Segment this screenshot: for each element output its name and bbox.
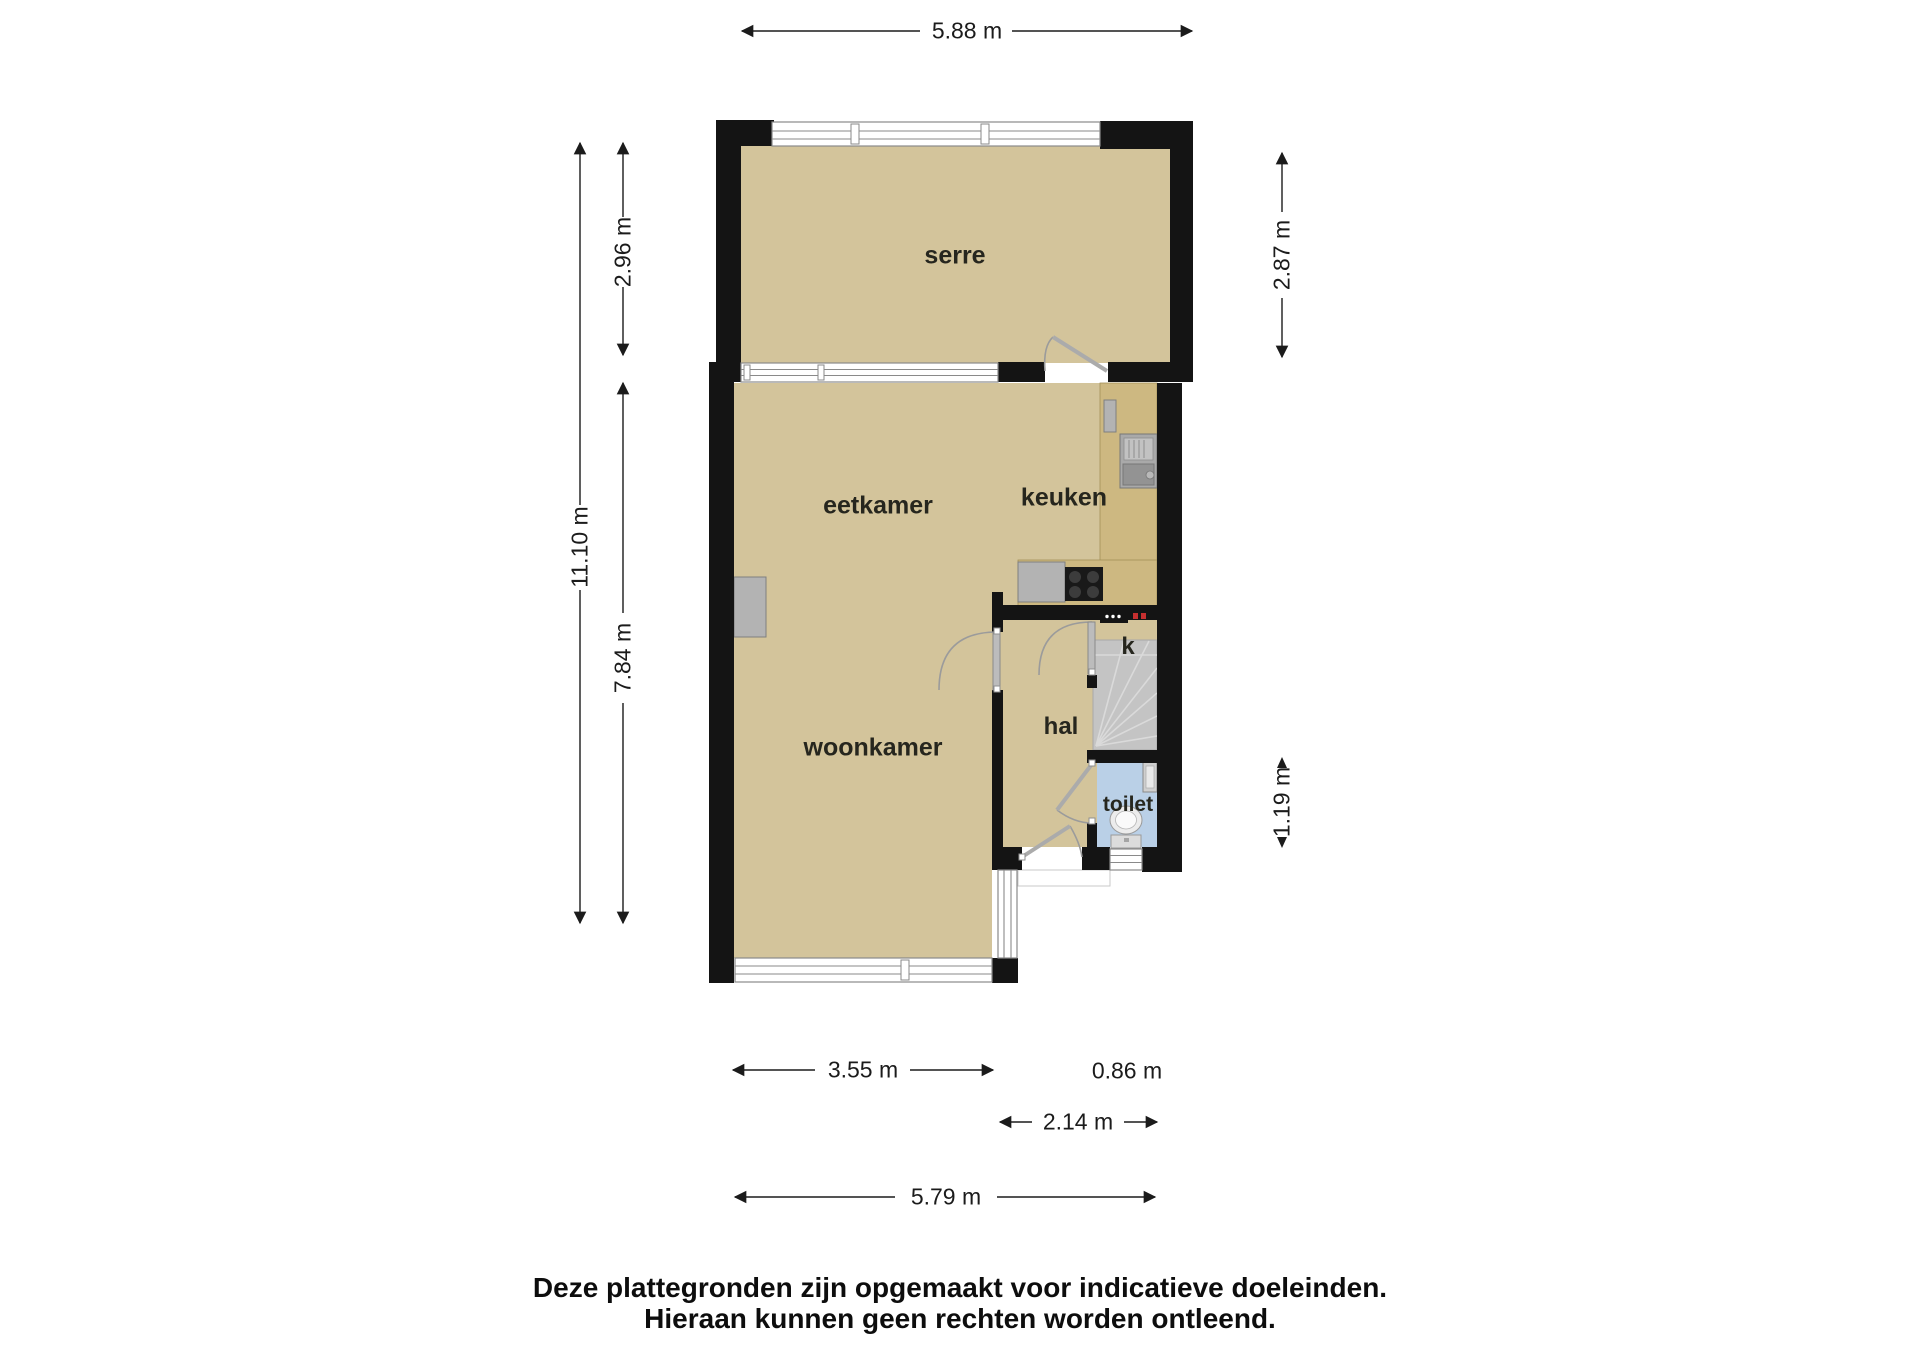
dim-left-total-height: 11.10 m bbox=[567, 506, 594, 587]
room-label-kast: k bbox=[1121, 633, 1134, 661]
toilet-window bbox=[1110, 849, 1142, 870]
dim-bottom-woonkamer-width: 3.55 m bbox=[828, 1057, 898, 1084]
cooktop bbox=[1065, 567, 1103, 601]
dim-bottom-total-width: 5.79 m bbox=[911, 1184, 981, 1211]
toilet-sink bbox=[1143, 762, 1157, 792]
room-label-woonkamer: woonkamer bbox=[804, 734, 943, 763]
room-label-eetkamer: eetkamer bbox=[823, 492, 933, 521]
serre-eetkamer-window bbox=[741, 363, 998, 382]
floorplan-page: serre eetkamer keuken woonkamer hal k to… bbox=[0, 0, 1920, 1358]
dim-bottom-hal-width: 2.14 m bbox=[1043, 1109, 1113, 1136]
fridge-appliance bbox=[1120, 434, 1157, 488]
room-label-serre: serre bbox=[924, 242, 985, 271]
radiator bbox=[734, 577, 766, 637]
counter-appliance bbox=[1104, 400, 1116, 432]
dim-top-width: 5.88 m bbox=[932, 18, 1002, 45]
dim-left-lower-height: 7.84 m bbox=[610, 623, 637, 693]
front-side-window bbox=[998, 870, 1017, 958]
disclaimer-line-2: Hieraan kunnen geen rechten worden ontle… bbox=[0, 1303, 1920, 1334]
room-label-keuken: keuken bbox=[1021, 484, 1107, 513]
dim-right-toilet-height: 1.19 m bbox=[1269, 767, 1296, 837]
woonkamer-window bbox=[735, 958, 992, 982]
room-label-toilet: toilet bbox=[1103, 793, 1153, 817]
entry-step bbox=[1018, 870, 1110, 886]
dim-bottom-offset-width: 0.86 m bbox=[1092, 1058, 1162, 1085]
floorplan-drawing bbox=[0, 0, 1920, 1358]
disclaimer: Deze plattegronden zijn opgemaakt voor i… bbox=[0, 1272, 1920, 1334]
disclaimer-line-1: Deze plattegronden zijn opgemaakt voor i… bbox=[0, 1272, 1920, 1303]
kitchen-sink-unit bbox=[1018, 562, 1065, 602]
room-label-hal: hal bbox=[1044, 713, 1079, 741]
serre-top-window bbox=[772, 122, 1100, 146]
dim-right-serre-height: 2.87 m bbox=[1269, 220, 1296, 290]
dim-left-serre-height: 2.96 m bbox=[610, 217, 637, 287]
